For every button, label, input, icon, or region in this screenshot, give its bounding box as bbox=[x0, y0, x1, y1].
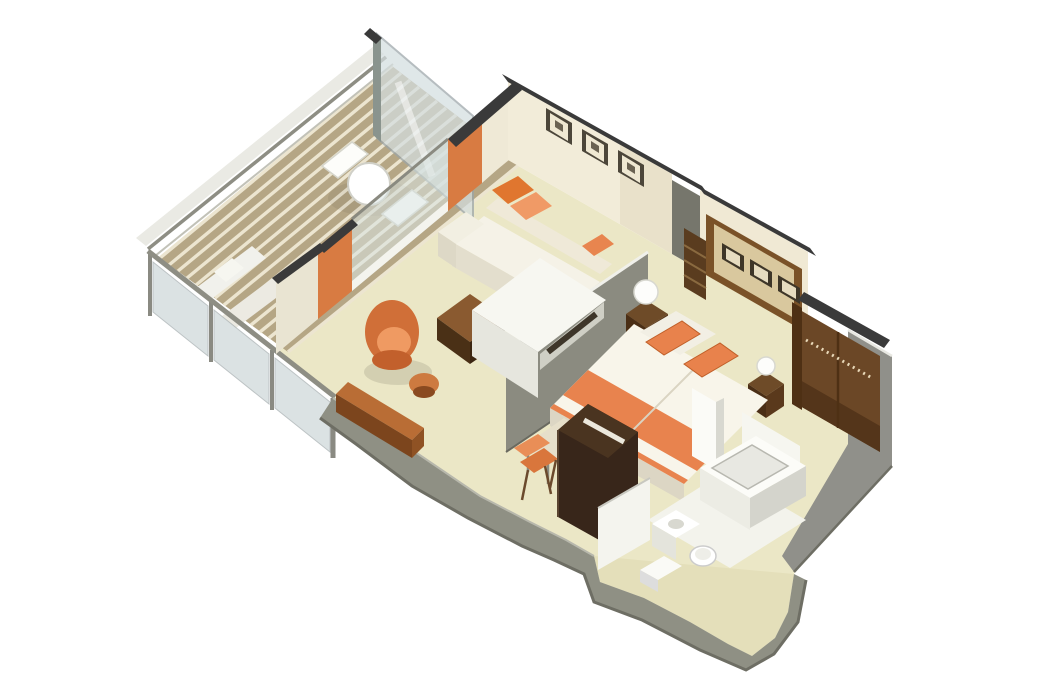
tub-chair-base bbox=[372, 350, 412, 370]
floor-plan-stage: Cruise suite isometric floor plan bbox=[0, 0, 1044, 696]
toilet-seat bbox=[695, 548, 711, 560]
sink-basin bbox=[668, 519, 684, 529]
suite-floor-plan bbox=[0, 0, 1044, 696]
divider-frame-post bbox=[373, 32, 381, 142]
wardrobe-post bbox=[792, 302, 802, 410]
table-lamp bbox=[634, 280, 658, 304]
ottoman-base bbox=[413, 386, 435, 398]
bathroom-wall bbox=[692, 388, 716, 470]
table-lamp bbox=[757, 357, 775, 375]
